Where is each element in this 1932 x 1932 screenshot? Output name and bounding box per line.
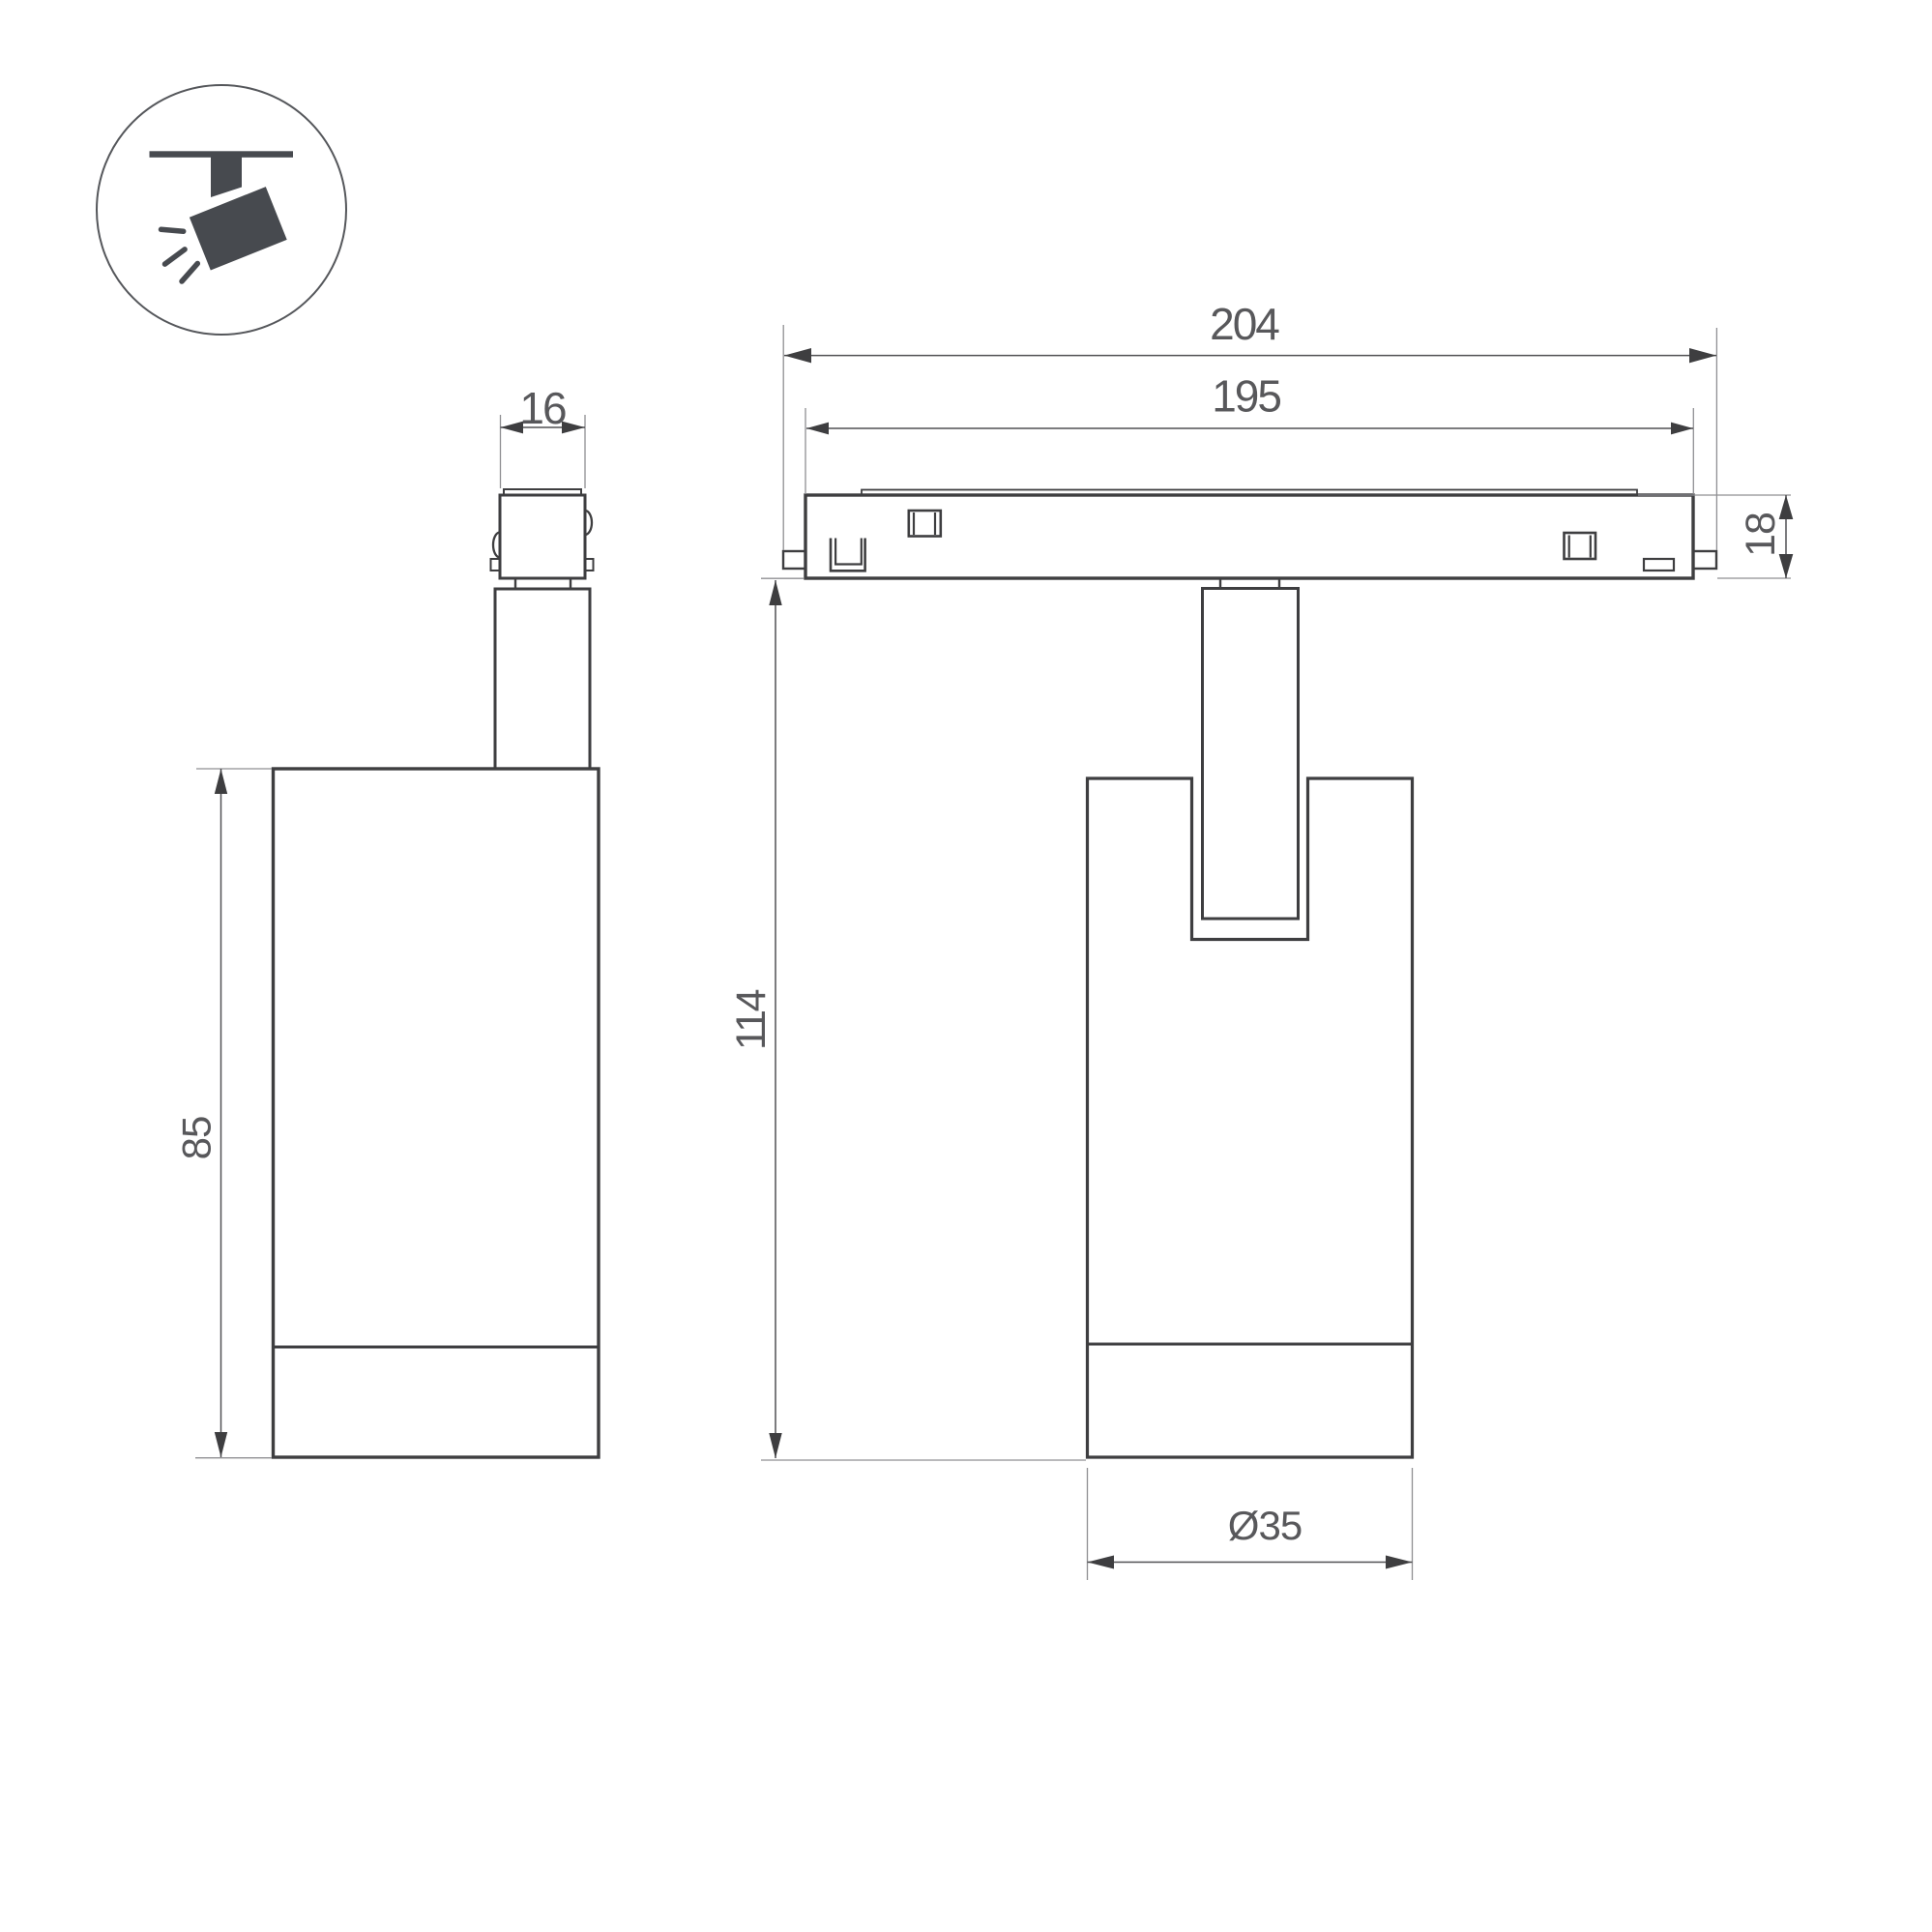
svg-text:204: 204 — [1210, 299, 1279, 349]
svg-text:195: 195 — [1212, 371, 1280, 422]
svg-text:18: 18 — [1738, 512, 1784, 557]
svg-text:114: 114 — [728, 989, 775, 1050]
svg-text:16: 16 — [519, 383, 566, 433]
svg-text:Ø35: Ø35 — [1228, 1503, 1302, 1548]
svg-text:85: 85 — [173, 1117, 219, 1160]
